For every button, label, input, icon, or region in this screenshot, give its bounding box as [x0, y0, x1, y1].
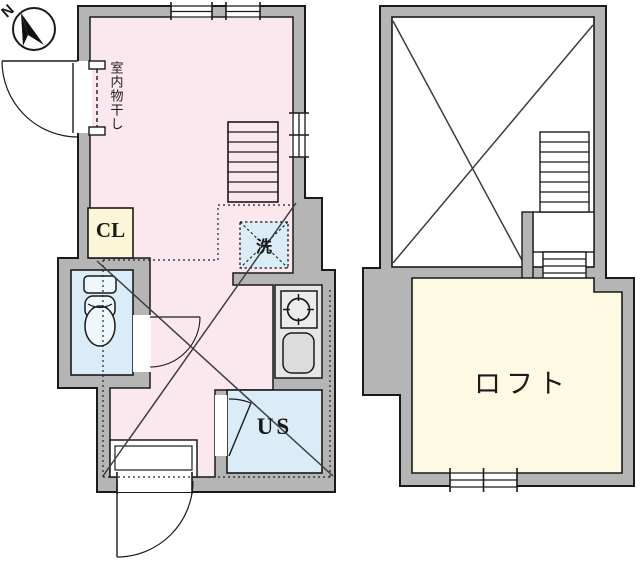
- west-door: [2, 61, 92, 137]
- sink: [283, 333, 314, 373]
- compass-icon: [13, 8, 55, 50]
- window-top-left: [171, 2, 212, 20]
- kitchen: [275, 285, 322, 378]
- stairs-1f: [228, 122, 278, 202]
- entrance-step: [110, 440, 197, 477]
- unit-shower-label: US: [227, 414, 322, 440]
- floorplan-drawing: [0, 0, 640, 564]
- window-top-right: [226, 2, 260, 20]
- toilet-bowl: [85, 306, 115, 346]
- indoor-drying-label: 室内物干し: [108, 61, 123, 131]
- toilet-door-opening: [133, 315, 151, 372]
- us-door-opening: [215, 395, 227, 456]
- closet-label: CL: [88, 218, 133, 243]
- floorplan-canvas: N 室内物干し CL 洗 US ロフト: [0, 0, 640, 564]
- floor2-plan: [363, 6, 634, 492]
- washer-label: 洗: [240, 233, 288, 257]
- toilet-tank: [84, 276, 116, 293]
- floor1-plan: [2, 2, 335, 557]
- loft-label: ロフト: [437, 362, 607, 401]
- window-east: [289, 113, 309, 157]
- stair-landing: [533, 212, 594, 252]
- entrance-door: [117, 472, 193, 557]
